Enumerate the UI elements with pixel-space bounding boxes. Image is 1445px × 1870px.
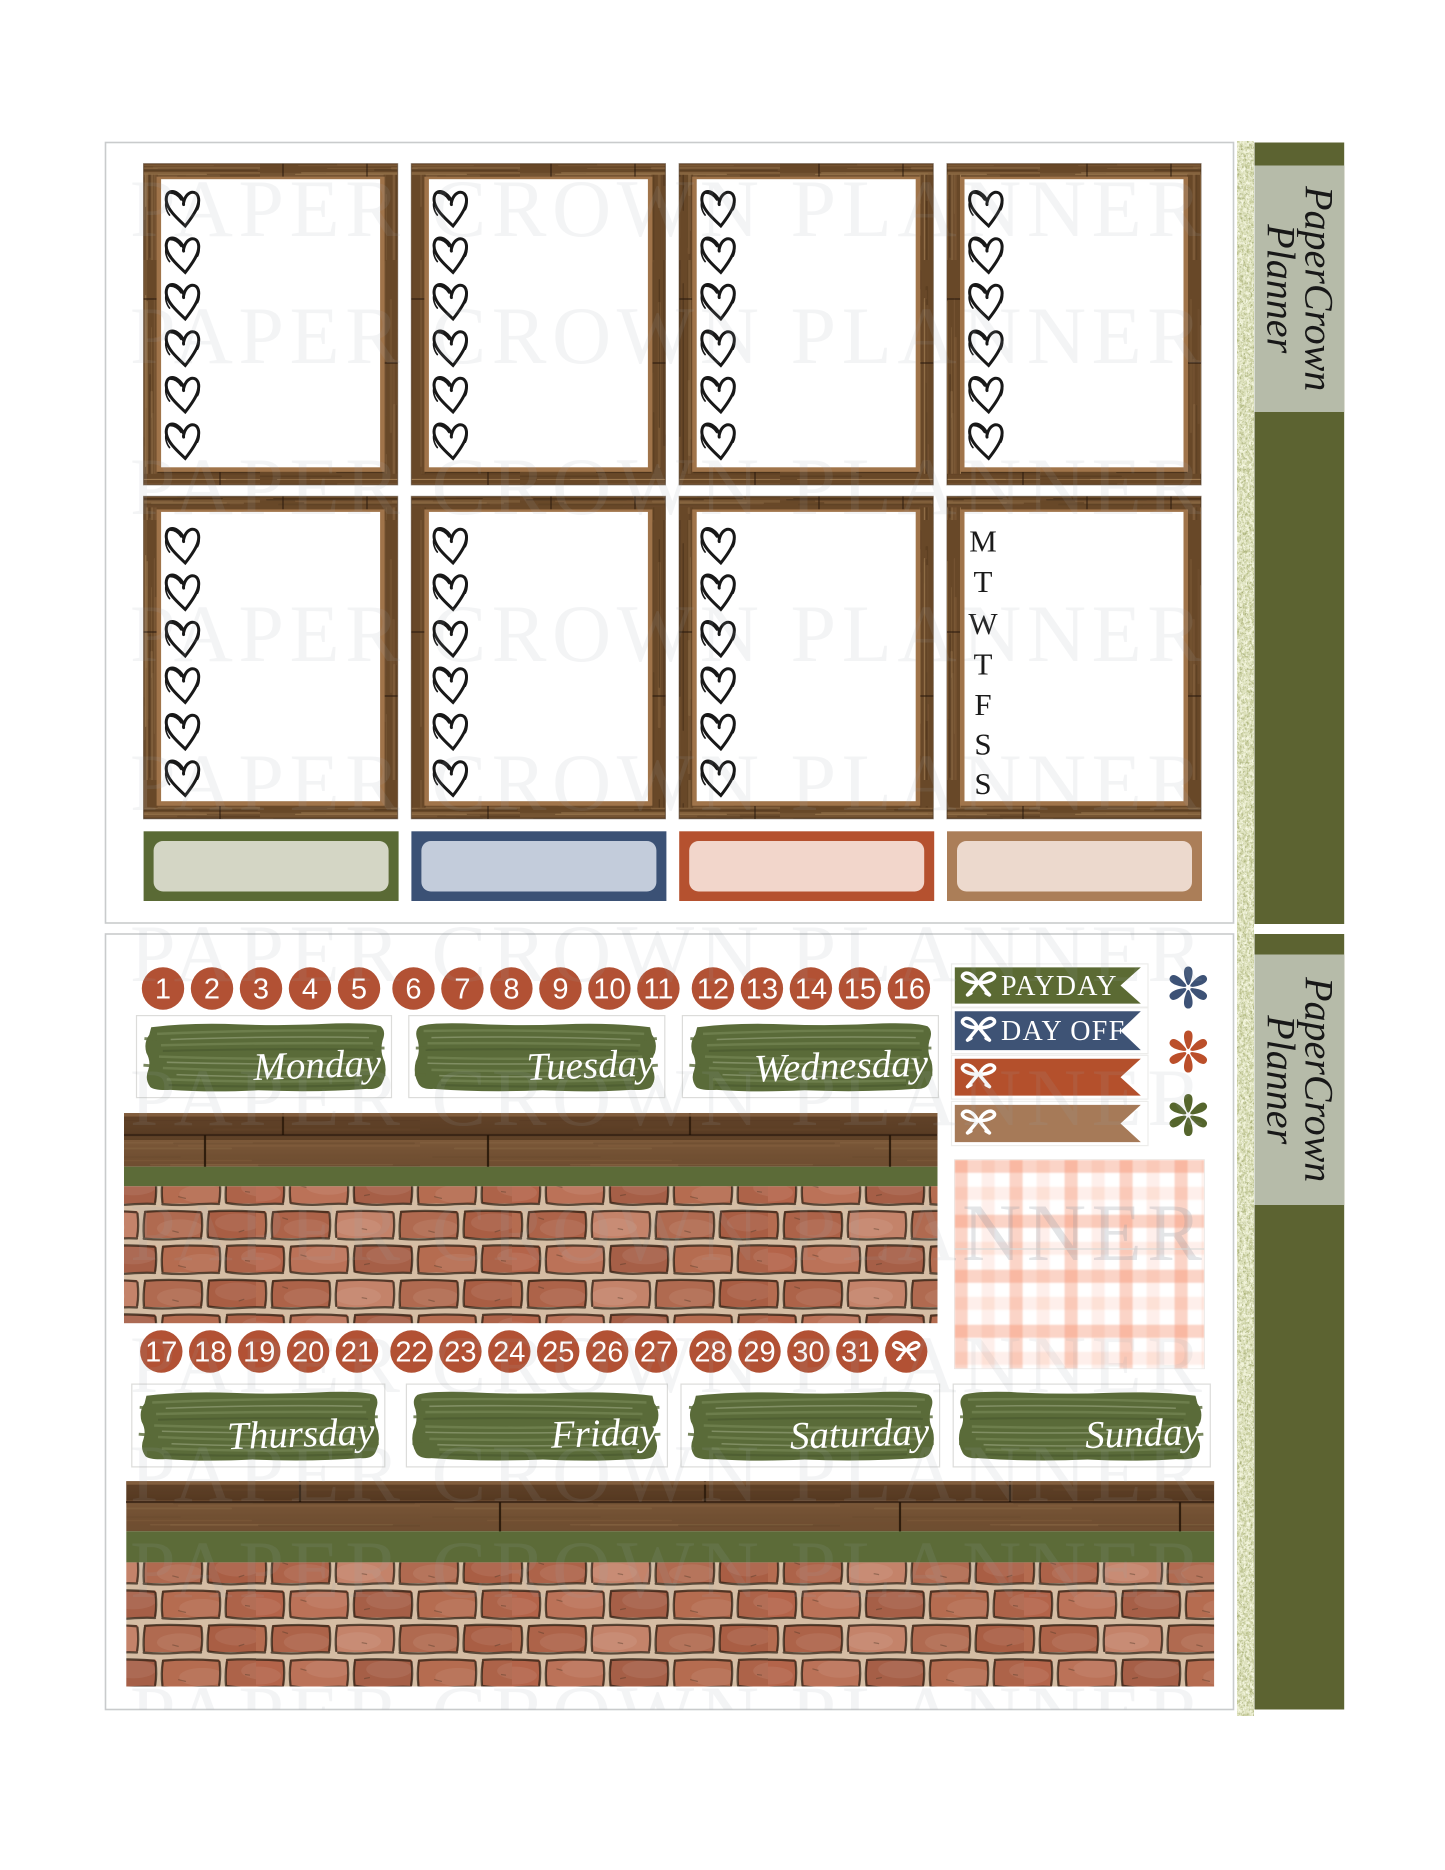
svg-text:PAPER CROWN PLANNER: PAPER CROWN PLANNER [130,1524,1215,1615]
svg-text:F: F [974,687,991,722]
svg-text:PAPER CROWN PLANNER: PAPER CROWN PLANNER [130,163,1215,254]
svg-text:PAPER CROWN PLANNER: PAPER CROWN PLANNER [130,1052,1215,1143]
svg-text:DAY OFF: DAY OFF [1001,1016,1126,1047]
svg-text:PAPER CROWN PLANNER: PAPER CROWN PLANNER [130,1428,1215,1519]
svg-text:Planner: Planner [1259,1014,1304,1144]
svg-text:PAPER CROWN PLANNER: PAPER CROWN PLANNER [130,588,1215,679]
svg-text:PAPER CROWN PLANNER: PAPER CROWN PLANNER [130,290,1215,381]
svg-text:PAPER CROWN PLANNER: PAPER CROWN PLANNER [130,1187,1215,1278]
svg-text:PAPER CROWN PLANNER: PAPER CROWN PLANNER [130,441,1215,532]
svg-text:PAPER CROWN PLANNER: PAPER CROWN PLANNER [130,737,1215,828]
svg-text:PAPER CROWN PLANNER: PAPER CROWN PLANNER [130,908,1215,999]
svg-text:Planner: Planner [1259,223,1304,353]
svg-text:PAPER CROWN PLANNER: PAPER CROWN PLANNER [130,1319,1215,1410]
